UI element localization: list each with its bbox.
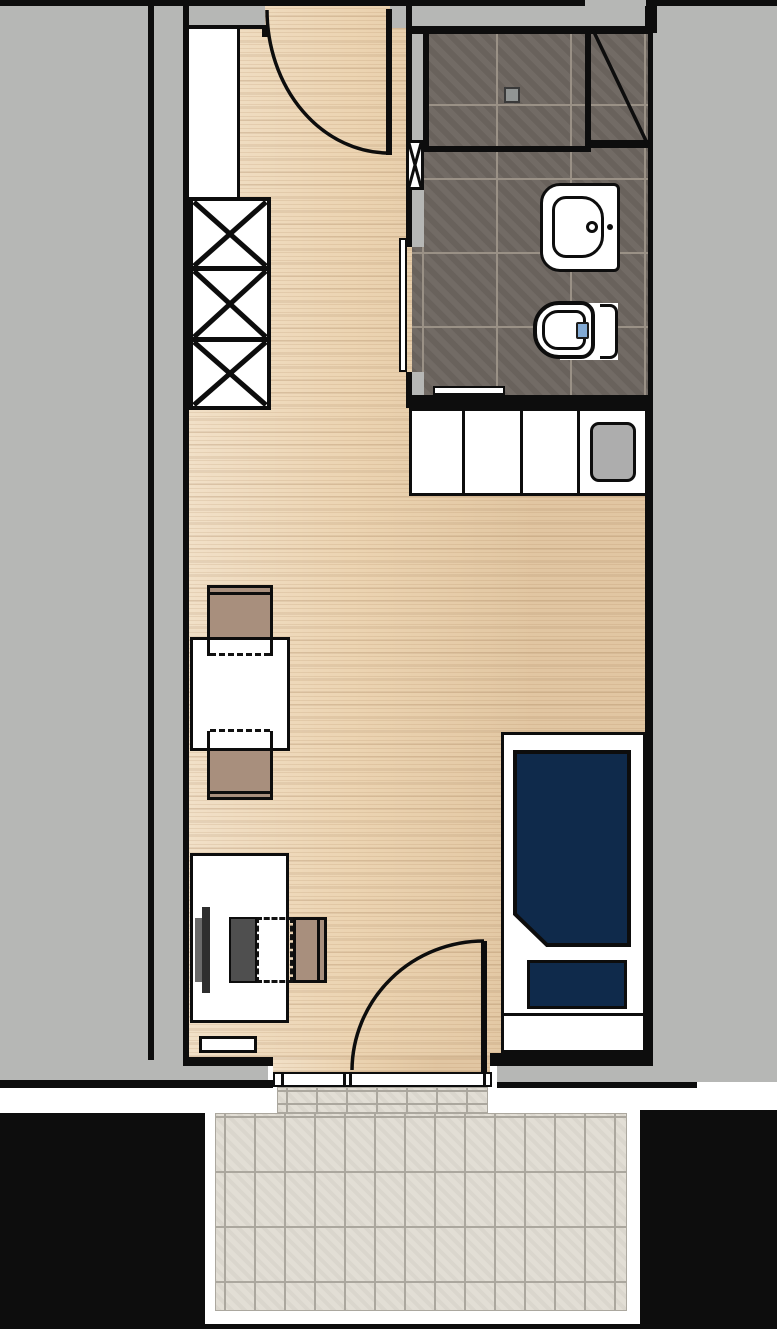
outside-fill-bottom-left xyxy=(0,1113,205,1329)
kitchen-divider-1 xyxy=(462,410,465,494)
outside-fill-bottom-right xyxy=(640,1110,777,1329)
wall-fill-top-bathroom xyxy=(390,6,652,28)
desk-chair-hidden-dashed xyxy=(256,917,293,983)
washbasin-dot xyxy=(607,224,613,230)
top-wall-gap xyxy=(585,0,646,6)
chair-bottom-hidden-dashed xyxy=(210,729,270,732)
bathroom-wall-cavity-2 xyxy=(412,190,424,247)
desk-equipment-box xyxy=(229,917,257,983)
entry-closet xyxy=(189,29,240,197)
chair-top-hidden-dashed xyxy=(210,653,270,656)
bottom-edge-line-right xyxy=(497,1082,697,1088)
installation-shaft xyxy=(406,140,424,190)
toilet-cistern-bracket xyxy=(600,304,618,359)
shower-bottom-edge xyxy=(423,146,585,152)
wardrobe-x-symbols xyxy=(193,201,267,406)
chair-bottom-hidden-right xyxy=(270,731,273,748)
bottom-wall-right xyxy=(490,1053,653,1066)
dining-chair-bottom-backrest-line xyxy=(207,791,273,794)
threshold-tick-2 xyxy=(343,1072,346,1087)
wall-fill-bottom-right xyxy=(497,1066,777,1082)
shower-left-wall xyxy=(423,26,429,152)
desk-chair-backrest-line xyxy=(317,917,320,983)
kitchen-divider-2 xyxy=(520,410,523,494)
threshold-tick-4 xyxy=(483,1072,486,1087)
monitor-screen xyxy=(202,907,210,993)
bed-foot-line xyxy=(503,1013,644,1016)
monitor-stand xyxy=(195,918,202,982)
floor-plan xyxy=(0,0,777,1329)
kitchen-divider-3 xyxy=(577,410,580,494)
balcony-door-threshold xyxy=(273,1072,492,1087)
desk-shelf xyxy=(199,1036,257,1053)
towel-rail xyxy=(433,386,505,395)
dining-chair-top-backrest-line xyxy=(207,592,273,595)
kitchen-sink xyxy=(590,422,636,482)
faucet-icon xyxy=(586,221,598,233)
bed-mattress xyxy=(511,748,633,949)
wardrobe xyxy=(189,197,271,410)
shaft-x-symbol xyxy=(409,143,421,187)
bed-pillow xyxy=(527,960,627,1009)
wall-fill-top-left xyxy=(189,6,265,25)
entry-door-swing-arc xyxy=(265,7,393,159)
bottom-edge-line-left xyxy=(0,1080,273,1088)
threshold-tick-1 xyxy=(281,1072,284,1087)
left-party-wall xyxy=(148,6,154,1060)
balcony-bottom-edge xyxy=(205,1324,640,1329)
balcony-door-swing-arc xyxy=(350,938,490,1074)
threshold-tick-3 xyxy=(349,1072,352,1087)
bathroom-sliding-door-leaf xyxy=(399,238,407,372)
chair-bottom-hidden-left xyxy=(207,731,210,748)
top-wall xyxy=(0,0,777,6)
chair-top-hidden-right xyxy=(270,639,273,656)
exterior-right xyxy=(652,6,777,1082)
shower-drain-icon xyxy=(504,87,520,103)
balcony-tiles-main xyxy=(215,1113,627,1311)
bottom-wall-left xyxy=(183,1057,273,1066)
balcony-tiles-upper-strip xyxy=(277,1087,488,1113)
flush-button-icon xyxy=(576,322,589,339)
desk-chair xyxy=(293,917,327,983)
exterior-left xyxy=(0,6,183,1080)
wall-fill-bottom-left xyxy=(148,1066,268,1080)
bathroom-bottom-wall xyxy=(406,395,653,408)
shower-glass-door xyxy=(591,28,651,148)
